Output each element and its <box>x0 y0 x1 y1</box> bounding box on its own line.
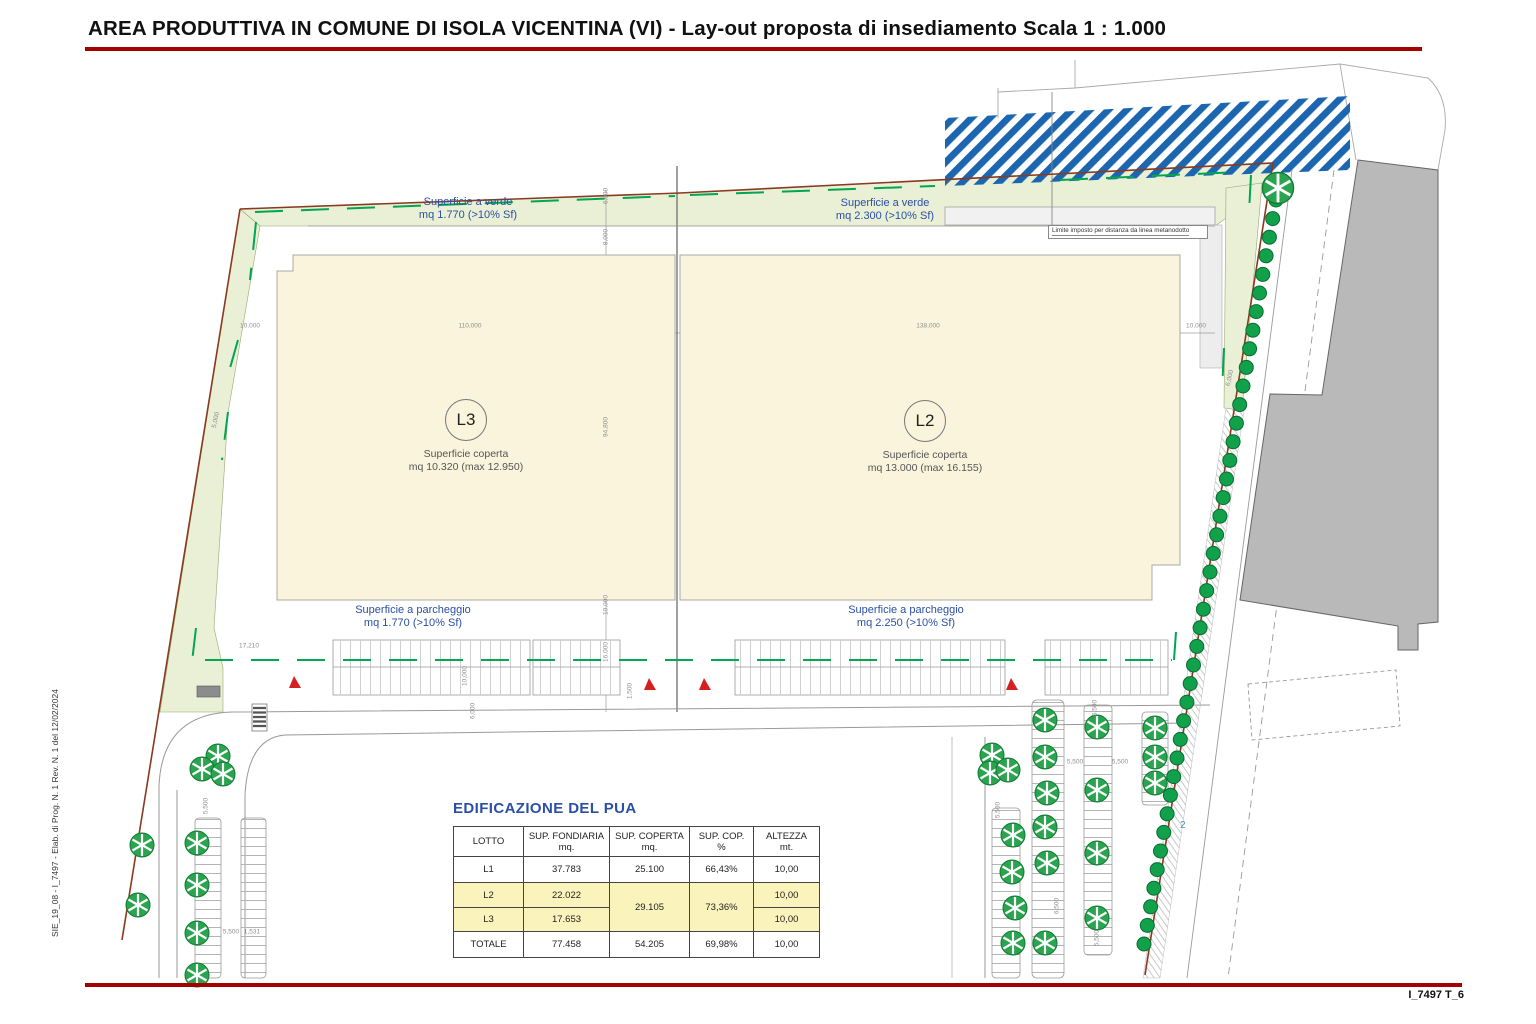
street-tree-icon <box>1154 844 1168 858</box>
street-tree-icon <box>1206 546 1220 560</box>
street-tree-icon <box>1220 472 1234 486</box>
street-tree-icon <box>1259 249 1273 263</box>
parking-bays-strip <box>333 640 1168 695</box>
street-tree-icon <box>1157 825 1171 839</box>
parking-tree-icon <box>1143 716 1167 740</box>
street-tree-icon <box>1147 881 1161 895</box>
building-l3 <box>277 255 675 600</box>
pipeline-corridor-strip <box>945 207 1215 225</box>
parking-tree-icon <box>1085 906 1109 930</box>
street-tree-icon <box>1190 639 1204 653</box>
parking-tree-icon <box>185 921 209 945</box>
green-strip-left <box>160 209 260 712</box>
street-tree-icon <box>1233 398 1247 412</box>
street-tree-icon <box>1173 732 1187 746</box>
street-tree-icon <box>1144 900 1158 914</box>
street-tree-icon <box>1163 788 1177 802</box>
gas-pipeline-constraint-hatch <box>945 96 1350 186</box>
street-tree-icon <box>1229 416 1243 430</box>
parking-tree-icon <box>1001 931 1025 955</box>
parking-tree-icon <box>1035 781 1059 805</box>
street-tree-icon <box>1239 360 1253 374</box>
street-tree-icon <box>1266 212 1280 226</box>
parking-tree-icon <box>1143 745 1167 769</box>
parking-tree-icon <box>1033 931 1057 955</box>
utility-cabin <box>197 686 220 697</box>
parking-tree-icon <box>1033 708 1057 732</box>
parking-tree-icon <box>1035 851 1059 875</box>
street-tree-icon <box>1216 491 1230 505</box>
sheet-title: AREA PRODUTTIVA IN COMUNE DI ISOLA VICEN… <box>88 17 1166 41</box>
street-tree-icon <box>1210 528 1224 542</box>
building-l2 <box>680 255 1180 600</box>
street-tree-icon <box>1180 695 1194 709</box>
parking-tree-icon <box>1033 815 1057 839</box>
street-tree-icon <box>1256 267 1270 281</box>
parking-tree-icon <box>126 893 150 917</box>
title-rule <box>85 47 1422 51</box>
street-tree-icon <box>1253 286 1267 300</box>
sheet-code: I_7497 T_6 <box>1408 989 1464 1001</box>
street-tree-icon <box>1140 918 1154 932</box>
parking-tree-icon <box>1085 841 1109 865</box>
street-tree-icon <box>1243 342 1257 356</box>
street-tree-icon <box>1193 621 1207 635</box>
parking-tree-icon <box>211 762 235 786</box>
parking-tree-icon <box>1085 778 1109 802</box>
revision-note: SIE_19_08 - I_7497 - Elab. di Prog. N. 1… <box>50 585 64 937</box>
parking-tree-icon <box>185 831 209 855</box>
street-tree-icon <box>1200 584 1214 598</box>
footer-rule <box>85 983 1462 987</box>
street-tree-icon <box>1203 565 1217 579</box>
street-tree-icon <box>1236 379 1250 393</box>
planned-building-outline <box>1248 670 1400 740</box>
parking-tree-icon <box>1003 896 1027 920</box>
street-tree-icon <box>1137 937 1151 951</box>
parking-tree-icon <box>1262 172 1293 203</box>
street-tree-icon <box>1150 863 1164 877</box>
street-tree-icon <box>1177 714 1191 728</box>
street-tree-icon <box>1226 435 1240 449</box>
side-buffer-strip <box>1200 225 1222 368</box>
street-tree-icon <box>1183 677 1197 691</box>
street-tree-icon <box>1262 230 1276 244</box>
drawing-sheet: Superficie a verdemq 1.770 (>10% Sf) Sup… <box>0 0 1536 1024</box>
street-tree-icon <box>1249 305 1263 319</box>
crosswalk-icon <box>252 704 267 731</box>
street-tree-icon <box>1246 323 1260 337</box>
site-plan <box>0 0 1536 1024</box>
street-tree-icon <box>1160 807 1174 821</box>
street-tree-icon <box>1170 751 1184 765</box>
parking-tree-icon <box>190 757 214 781</box>
street-tree-icon <box>1196 602 1210 616</box>
parking-tree-icon <box>1085 715 1109 739</box>
parking-tree-icon <box>996 758 1020 782</box>
parking-tree-icon <box>1033 745 1057 769</box>
street-tree-icon <box>1167 770 1181 784</box>
street-tree-icon <box>1187 658 1201 672</box>
parking-tree-icon <box>1143 771 1167 795</box>
parking-tree-icon <box>1001 823 1025 847</box>
parking-tree-icon <box>185 873 209 897</box>
street-tree-icon <box>1223 453 1237 467</box>
parking-tree-icon <box>130 833 154 857</box>
parking-tree-icon <box>1000 860 1024 884</box>
street-tree-icon <box>1213 509 1227 523</box>
